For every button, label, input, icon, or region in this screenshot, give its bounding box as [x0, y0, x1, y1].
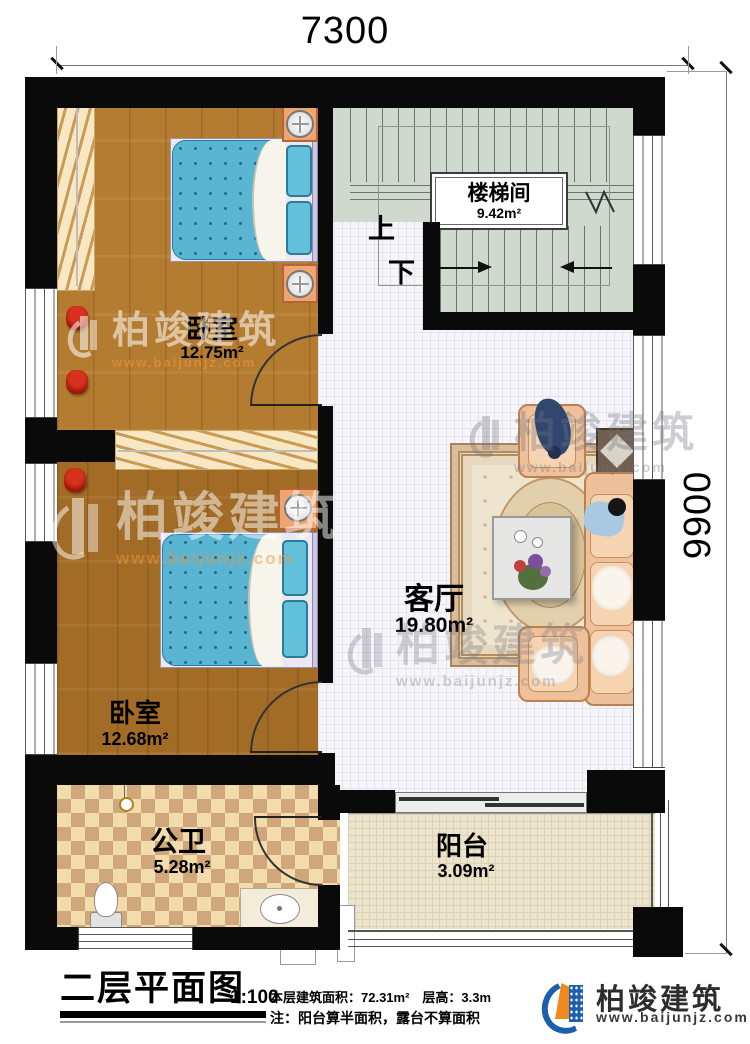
bedroom2-door-leaf [250, 751, 322, 753]
living-room-name: 客厅 [404, 585, 464, 615]
drawing-title: 二层平面图 [60, 971, 245, 1006]
living-room-area: 19.80m² [395, 615, 473, 636]
person-head [608, 498, 626, 516]
extension-line [688, 46, 689, 74]
extension-line [56, 46, 57, 74]
dimension-tick [50, 57, 63, 70]
brand-url: www.baijunjz.com [596, 1009, 749, 1025]
cup [514, 530, 527, 543]
bedroom2-wardrobe [115, 430, 318, 470]
bedroom1-name: 卧室 [186, 316, 238, 342]
person-head [548, 446, 561, 459]
bathroom-area: 5.28m² [153, 858, 210, 876]
bedroom2-pillow [282, 600, 308, 658]
stairwell-label-box: 楼梯间 9.42m² [430, 172, 568, 230]
wall-bedroom2-right [318, 430, 333, 683]
balcony-area: 3.09m² [437, 862, 494, 880]
stair-arrow-head-right [478, 261, 492, 273]
extension-line [685, 953, 727, 954]
flower [540, 566, 551, 577]
window [633, 135, 665, 265]
window [25, 463, 57, 542]
window [25, 288, 57, 418]
wall-top [25, 77, 665, 108]
bedroom2-name: 卧室 [109, 700, 161, 726]
lamp-icon [284, 494, 312, 522]
window [78, 927, 193, 950]
wall-bedroom1-right [318, 406, 333, 430]
balcony-name: 阳台 [436, 833, 488, 859]
bedroom1-nightstand [282, 264, 318, 303]
balcony-floor [348, 813, 655, 929]
bedroom2-stool [64, 468, 86, 492]
bedroom2-pillow [282, 540, 308, 596]
stair-direction-arrow [574, 267, 612, 269]
side-table-top [600, 434, 634, 468]
lamp-icon [286, 110, 314, 138]
cup [532, 537, 543, 548]
dimension-top-value: 7300 [280, 12, 410, 50]
bedroom1-area: 12.75m² [180, 344, 243, 361]
wall-living-balcony [335, 790, 395, 813]
stair-break-line [582, 186, 618, 222]
wall-left [25, 77, 57, 288]
window [633, 335, 665, 480]
floor-plan-sheet: 7300 9900 上 下 楼梯间 9.42m² 卧室 12.75m² [0, 0, 750, 1044]
bedroom2-area: 12.68m² [101, 730, 168, 748]
wall-corner [587, 770, 665, 813]
wall-right [633, 480, 665, 620]
wall-bedroom2-bottom [25, 755, 318, 785]
bedroom2-nightstand [278, 488, 318, 530]
bedroom1-closet [57, 95, 95, 291]
closet-rod [76, 100, 78, 286]
stair-down-label: 下 [388, 260, 415, 287]
bedroom1-nightstand [282, 104, 318, 142]
window [25, 663, 57, 755]
side-table [596, 428, 638, 474]
sliding-door-panel [399, 797, 499, 801]
ceiling-light-icon [119, 797, 134, 812]
stair-direction-arrow [438, 267, 478, 269]
toilet-bowl [94, 882, 118, 917]
measurement-note: 注：阳台算半面积，露台不算面积 [270, 1008, 480, 1028]
wall-bathroom-right [318, 785, 340, 820]
wall-bathroom-right [318, 885, 340, 930]
stairwell-area: 9.42m² [477, 206, 521, 220]
bedroom1-stool [66, 306, 88, 330]
dimension-right-value: 9900 [679, 470, 717, 560]
lamp-icon [286, 270, 314, 298]
wall-bottom [193, 927, 340, 950]
title-underline-thin [60, 1021, 266, 1023]
wall-bottom [25, 927, 78, 950]
sofa-throw [592, 636, 630, 676]
bedroom2-blanket [248, 534, 282, 666]
bedroom1-pillow [286, 201, 312, 255]
bedroom1-pillow [286, 145, 312, 197]
wall-stair-bottom [423, 312, 633, 330]
stair-arrow-head-left [560, 261, 574, 273]
sofa-throw [592, 566, 632, 610]
wall-right [633, 77, 665, 135]
stairwell-name: 楼梯间 [468, 183, 531, 204]
title-underline [60, 1011, 266, 1018]
wall-bedroom-divider [25, 430, 115, 462]
armchair-throw [532, 646, 574, 684]
balcony-railing-bottom [348, 930, 633, 947]
bedroom1-door-leaf [250, 404, 322, 406]
sliding-door-panel [485, 803, 584, 807]
extension-line [667, 71, 727, 72]
dimension-top-line [57, 65, 688, 66]
stair-up-label: 上 [368, 216, 395, 243]
wall-right [633, 265, 665, 335]
stairwell-label-inner: 楼梯间 9.42m² [435, 177, 563, 225]
flower [514, 560, 526, 572]
bathroom-name: 公卫 [150, 828, 206, 856]
bedroom1-blanket [252, 140, 286, 260]
window [633, 620, 665, 768]
column [633, 907, 683, 957]
wall-bedroom1-right [318, 108, 333, 334]
bedroom1-stool [66, 370, 88, 394]
dimension-right-line [726, 72, 727, 954]
logo-tower-blue [569, 985, 583, 1022]
area-note: 本层建筑面积：72.31m² 层高：3.3m [270, 987, 491, 1006]
bathroom-door-leaf [254, 816, 322, 818]
brand-logo-icon [542, 976, 588, 1026]
wall-left [25, 542, 57, 663]
sink-drain [277, 906, 282, 911]
wardrobe-rod [118, 450, 315, 452]
